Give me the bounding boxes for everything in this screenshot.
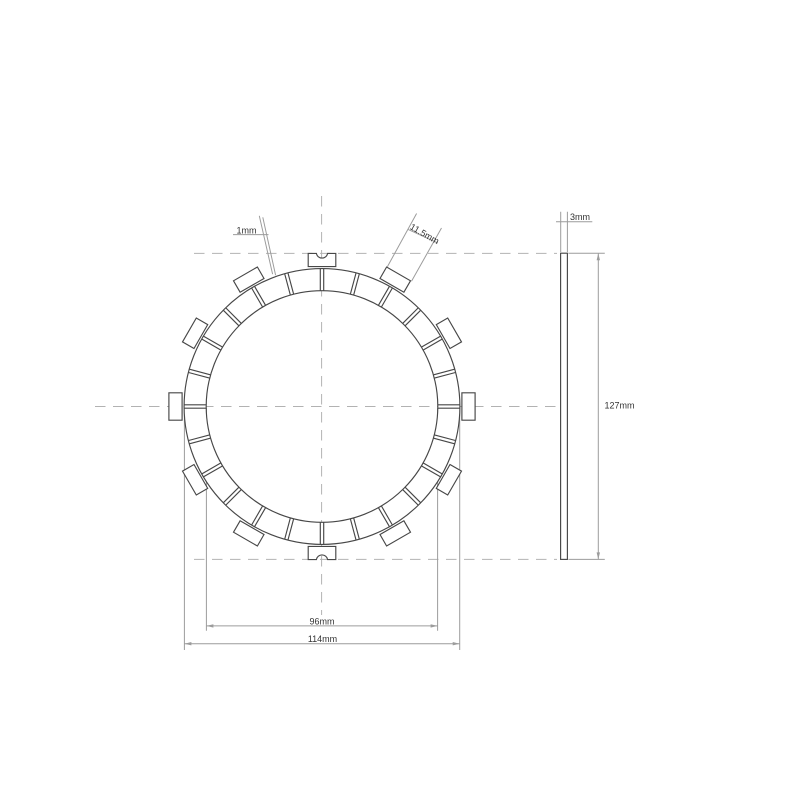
svg-text:96mm: 96mm [309, 616, 334, 626]
svg-text:114mm: 114mm [308, 634, 337, 644]
svg-text:1mm: 1mm [237, 226, 257, 236]
svg-text:3mm: 3mm [570, 212, 590, 222]
svg-text:127mm: 127mm [605, 401, 635, 411]
